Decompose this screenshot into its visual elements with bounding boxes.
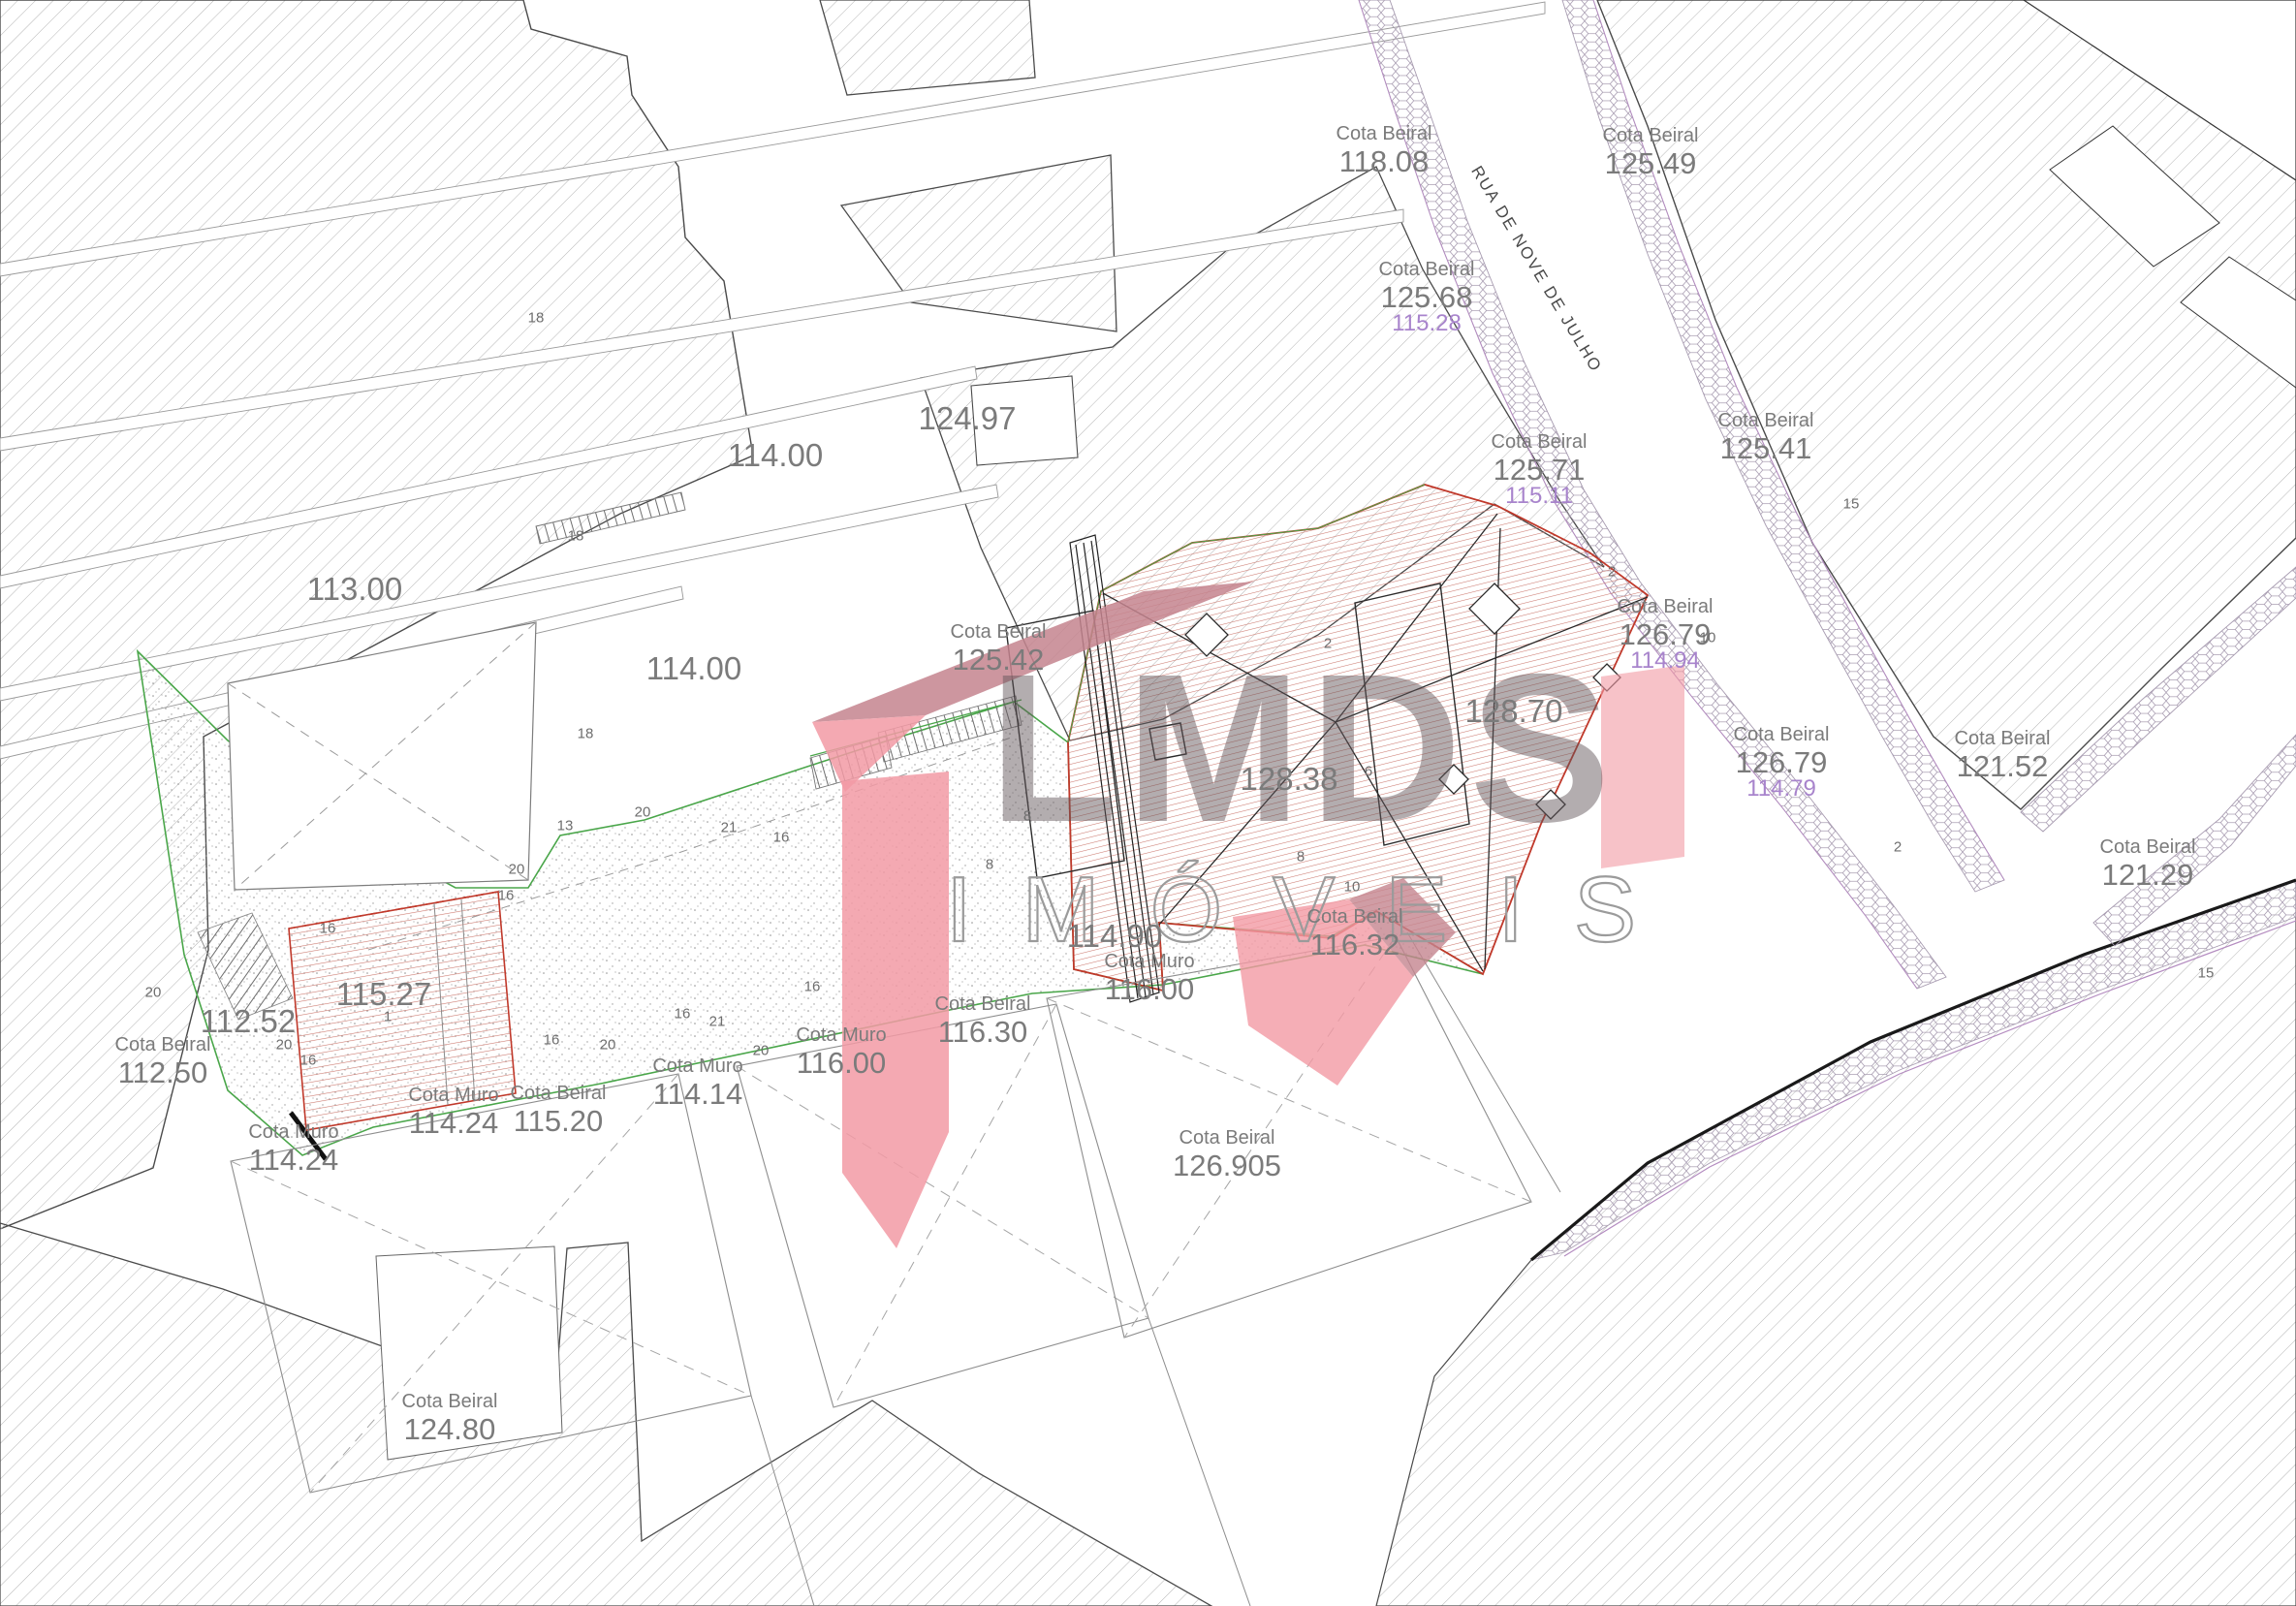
dimension-tick-label: 16 [498, 888, 515, 904]
elevation-label: 124.97 [919, 401, 1017, 436]
cota-label: Cota Beiral115.20 [511, 1084, 607, 1137]
cota-label: Cota Muro114.24 [408, 1086, 498, 1139]
cota-label: Cota Muro114.14 [652, 1056, 742, 1110]
cota-label: Cota Beiral126.905 [1173, 1128, 1281, 1181]
cota-label-secondary: 115.28 [1379, 311, 1475, 336]
cota-label-value: 115.27 [336, 977, 431, 1012]
dimension-tick-label: 16 [773, 830, 790, 846]
cota-label-title: Cota Muro [1104, 952, 1194, 973]
dimension-tick-label: 2 [1608, 564, 1616, 581]
dimension-tick-label: 8 [986, 857, 993, 873]
cota-label-value: 124.97 [919, 401, 1017, 436]
cota-label-value: 121.29 [2100, 859, 2196, 891]
cota-label-value: 128.70 [1465, 694, 1563, 729]
cota-label-value: 116.32 [1307, 929, 1403, 960]
cota-label: Cota Muro116.00 [796, 1025, 886, 1079]
cota-label-title: Cota Beiral [1955, 729, 2051, 750]
cota-label: Cota Muro116.00 [1104, 952, 1194, 1005]
cota-label-value: 125.42 [951, 644, 1047, 676]
cota-label-title: Cota Beiral [1379, 260, 1475, 281]
dimension-tick-label: 6 [1365, 764, 1372, 780]
cota-label-title: Cota Beiral [935, 994, 1031, 1016]
elevation-label: 112.52 [201, 1004, 296, 1039]
elevation-label: 114.00 [728, 438, 823, 473]
dimension-tick-label: 16 [544, 1032, 560, 1049]
dimension-tick-label: 15 [2198, 965, 2215, 982]
dimension-tick-label: 2 [1324, 636, 1332, 652]
cota-label-title: Cota Beiral [511, 1084, 607, 1105]
dimension-tick-label: 16 [675, 1006, 691, 1023]
cota-label-title: Cota Beiral [115, 1035, 211, 1056]
cota-label-title: Cota Beiral [1337, 124, 1432, 145]
cota-label-secondary: 114.79 [1734, 776, 1830, 802]
cota-label: Cota Beiral125.41 [1718, 411, 1814, 464]
dimension-tick-label: 1 [384, 1009, 392, 1025]
cota-label-title: Cota Muro [796, 1025, 886, 1047]
cota-label-value: 112.50 [115, 1056, 211, 1088]
site-plan-canvas: LMDS IMÓVEIS RUA DE NOVE DE JULHO Cota B… [0, 0, 2296, 1606]
cota-label-title: Cota Beiral [2100, 837, 2196, 859]
dimension-tick-label: 13 [557, 818, 574, 834]
dimension-tick-label: 20 [635, 804, 651, 821]
dimension-tick-label: 21 [721, 820, 738, 836]
cota-label-title: Cota Beiral [1173, 1128, 1281, 1149]
cota-label: Cota Beiral124.80 [402, 1392, 498, 1445]
cota-label-title: Cota Muro [652, 1056, 742, 1078]
cota-label-title: Cota Beiral [402, 1392, 498, 1413]
cota-label-title: Cota Beiral [1734, 725, 1830, 746]
cota-label: Cota Beiral112.50 [115, 1035, 211, 1088]
dimension-tick-label: 16 [320, 921, 336, 937]
elevation-label: 115.27 [336, 977, 431, 1012]
dimension-tick-label: 15 [1843, 496, 1860, 513]
cota-label-title: Cota Beiral [1718, 411, 1814, 432]
cota-label: Cota Beiral125.42 [951, 622, 1047, 676]
elevation-label: 128.70 [1465, 694, 1563, 729]
cota-label-value: 125.68 [1379, 281, 1475, 313]
dimension-tick-label: 20 [145, 985, 162, 1001]
cota-label-value: 112.52 [201, 1004, 296, 1039]
dimension-tick-label: 10 [1700, 630, 1716, 646]
dimension-tick-label: 8 [1297, 849, 1305, 866]
cota-label-value: 113.00 [307, 572, 402, 607]
dimension-tick-label: 8 [1023, 808, 1031, 825]
cota-label-value: 114.00 [646, 651, 741, 686]
dimension-tick-label: 20 [600, 1037, 616, 1054]
dimension-tick-label: 2 [1894, 839, 1902, 856]
dimension-tick-label: 18 [568, 528, 584, 545]
elevation-label: 114.90 [1067, 919, 1162, 954]
cota-label-title: Cota Muro [248, 1122, 338, 1144]
cota-label-title: Cota Beiral [1618, 597, 1714, 618]
cota-label-value: 125.71 [1492, 454, 1588, 486]
cota-label-title: Cota Beiral [1492, 432, 1588, 454]
cota-label-value: 116.00 [1104, 973, 1194, 1005]
cota-label-value: 118.08 [1337, 145, 1432, 177]
dimension-tick-label: 16 [300, 1053, 317, 1069]
elevation-label: 113.00 [307, 572, 402, 607]
cota-label-value: 121.52 [1955, 750, 2051, 782]
cota-label-value: 116.00 [796, 1047, 886, 1079]
cota-label-value: 114.24 [248, 1144, 338, 1176]
cota-label-value: 124.80 [402, 1413, 498, 1445]
cota-label-value: 125.49 [1603, 147, 1699, 179]
building-block-bottom-left [0, 1223, 1211, 1606]
cota-label-secondary: 114.94 [1618, 648, 1714, 674]
dimension-tick-label: 16 [804, 979, 821, 995]
cota-label-title: Cota Muro [408, 1086, 498, 1107]
cota-label-title: Cota Beiral [1603, 126, 1699, 147]
cota-label-value: 114.90 [1067, 919, 1162, 954]
elevation-label: 114.00 [646, 651, 741, 686]
elevation-label: 128.38 [1241, 762, 1338, 797]
dimension-tick-label: 20 [509, 862, 525, 878]
dimension-tick-label: 21 [709, 1014, 726, 1030]
cota-label-secondary: 115.11 [1492, 484, 1588, 509]
cota-label-value: 128.38 [1241, 762, 1338, 797]
dimension-tick-label: 18 [528, 310, 545, 327]
cota-label-title: Cota Beiral [1307, 907, 1403, 929]
building-block-bottom-right [1376, 880, 2296, 1606]
cota-label: Cota Beiral125.71115.11 [1492, 432, 1588, 509]
cota-label: Cota Beiral116.30 [935, 994, 1031, 1048]
cota-label-value: 114.24 [408, 1107, 498, 1139]
cota-label: Cota Beiral125.49 [1603, 126, 1699, 179]
cota-label: Cota Beiral121.52 [1955, 729, 2051, 782]
cota-label-value: 114.00 [728, 438, 823, 473]
cota-label: Cota Beiral126.79114.94 [1618, 597, 1714, 674]
cota-label-value: 114.14 [652, 1078, 742, 1110]
cota-label: Cota Beiral121.29 [2100, 837, 2196, 891]
cota-label-title: Cota Beiral [951, 622, 1047, 644]
dimension-tick-label: 20 [753, 1043, 770, 1059]
cota-label: Cota Beiral116.32 [1307, 907, 1403, 960]
cota-label-value: 116.30 [935, 1016, 1031, 1048]
cota-label: Cota Beiral126.79114.79 [1734, 725, 1830, 802]
dimension-tick-label: 20 [276, 1037, 293, 1054]
dimension-tick-label: 10 [1344, 879, 1361, 896]
cota-label: Cota Beiral125.68115.28 [1379, 260, 1475, 336]
cota-label: Cota Beiral118.08 [1337, 124, 1432, 177]
cota-label-value: 126.79 [1734, 746, 1830, 778]
cota-label-value: 125.41 [1718, 432, 1814, 464]
watermark-title: LMDS [989, 628, 1619, 870]
cota-label-value: 126.79 [1618, 618, 1714, 650]
cota-label: Cota Muro114.24 [248, 1122, 338, 1176]
cota-label-value: 126.905 [1173, 1149, 1281, 1181]
dimension-tick-label: 18 [578, 726, 594, 742]
cota-label-value: 115.20 [511, 1105, 607, 1137]
